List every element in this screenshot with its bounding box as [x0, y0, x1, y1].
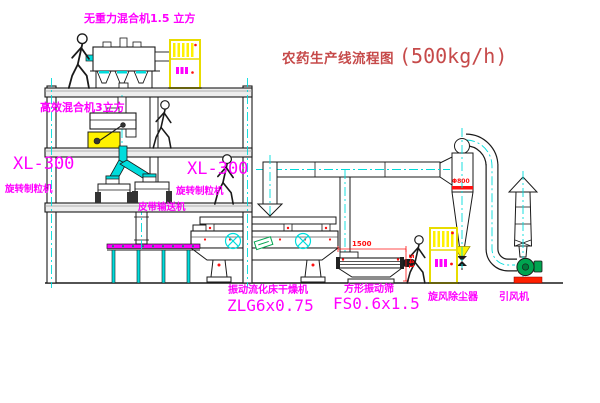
dimension-screen-side: 541 [407, 254, 414, 269]
label-granulator-right-name: 旋转制粒机 [176, 187, 224, 197]
title-text: 农药生产线流程图 [282, 47, 394, 67]
label-granulator-right-model: XL-300 [187, 161, 248, 178]
label-fan: 引风机 [499, 293, 529, 303]
label-high-mixer: 高效混合机3立方 [40, 102, 125, 113]
diagram-canvas: 农药生产线流程图 (500kg/h) 无重力混合机1.5 立方 高效混合机3立方… [0, 0, 600, 403]
title-capacity: (500kg/h) [399, 44, 507, 68]
mixer-drive-guard [88, 132, 120, 148]
screen-riser-duct [340, 170, 350, 256]
belt-conveyor [107, 244, 200, 283]
granulator-left [95, 176, 133, 203]
label-dryer-name: 振动流化床干燥机 [228, 286, 308, 296]
label-gravity-mixer: 无重力混合机1.5 立方 [84, 13, 195, 24]
downcomer-duct [466, 140, 517, 265]
dimension-screen-length: 1500 [352, 241, 371, 248]
dimension-cyclone-dia: Φ800 [452, 179, 470, 185]
exhaust-duct-horizontal [256, 157, 452, 185]
label-screen-model: FS0.6x1.5 [333, 296, 420, 312]
label-dryer-model: ZLG6x0.75 [227, 298, 314, 314]
control-cabinet-top [168, 40, 202, 88]
fluid-bed-dryer [191, 217, 338, 282]
control-cabinet-right [428, 228, 459, 283]
label-granulator-left-model: XL-300 [13, 156, 74, 173]
vibrating-screen [336, 246, 415, 283]
label-belt-conveyor: 皮带输送机 [138, 203, 186, 213]
induced-draft-fan [514, 258, 542, 283]
granulator-right [132, 174, 172, 203]
label-cyclone: 旋风除尘器 [428, 293, 478, 303]
drawing-title: 农药生产线流程图 (500kg/h) [282, 44, 507, 68]
label-granulator-left-name: 旋转制粒机 [5, 185, 53, 195]
